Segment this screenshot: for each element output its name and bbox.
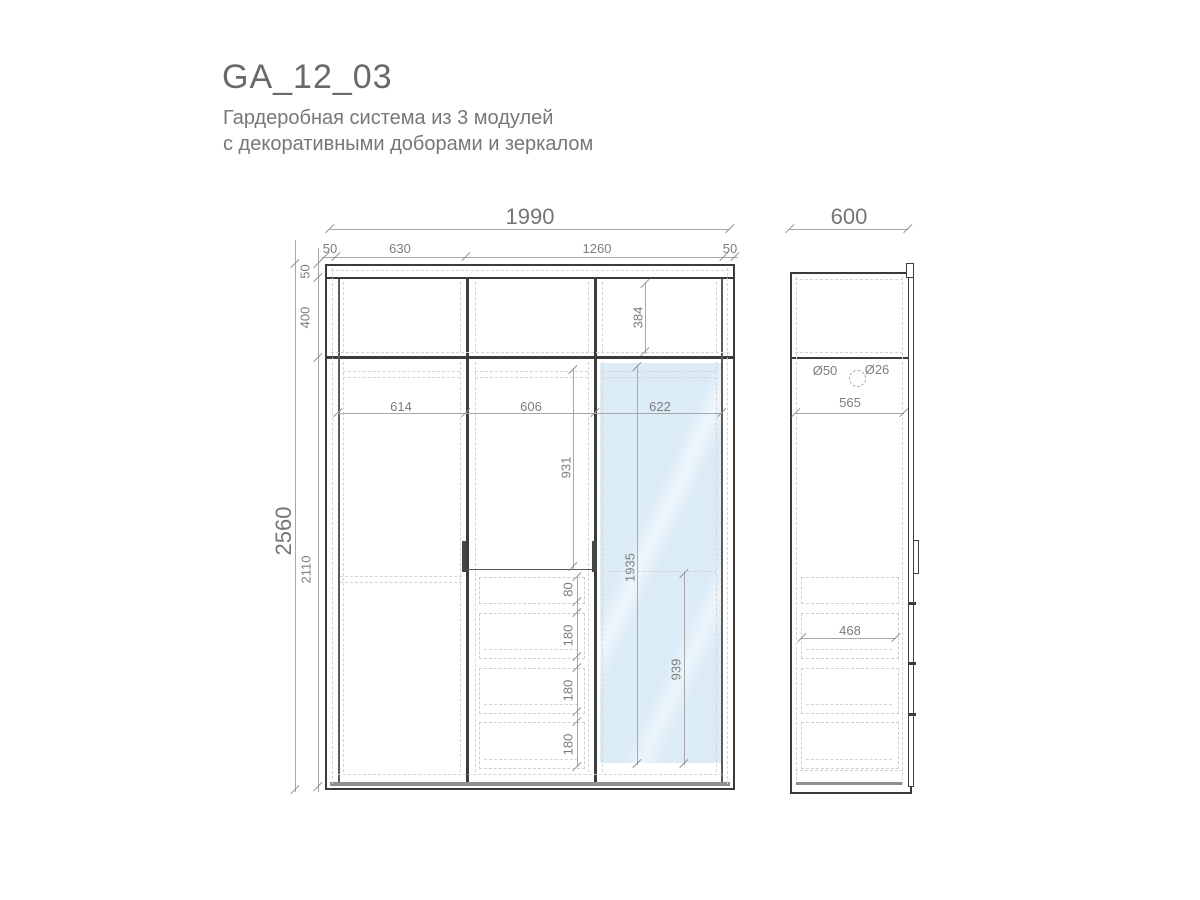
dim-segment-630: 630 bbox=[375, 241, 425, 256]
dim-rod-d50: Ø50 bbox=[810, 363, 840, 378]
dim-inner-depth-565: 565 bbox=[825, 395, 875, 410]
dim-module3-width: 622 bbox=[635, 399, 685, 414]
dim-segment-50-left: 50 bbox=[318, 241, 342, 256]
dim-overall-height: 2560 bbox=[271, 481, 297, 581]
side-door-profile bbox=[908, 264, 914, 787]
dim-height-50: 50 bbox=[298, 260, 313, 284]
subtitle-line-2: с декоративными доборами и зеркалом bbox=[223, 131, 593, 157]
dim-mirror-lower-939: 939 bbox=[669, 652, 684, 688]
door-handle-left bbox=[462, 541, 467, 572]
front-plinth bbox=[330, 782, 730, 786]
dim-drawer-180a: 180 bbox=[561, 618, 576, 654]
side-view-outline bbox=[790, 272, 912, 794]
dim-middle-upper-931: 931 bbox=[559, 450, 574, 486]
side-drawer-handle-3 bbox=[908, 713, 916, 716]
dim-module2-width: 606 bbox=[506, 399, 556, 414]
side-door-handle bbox=[913, 540, 919, 574]
mirror-panel bbox=[600, 363, 721, 763]
side-drawer-handle-1 bbox=[908, 602, 916, 605]
front-crown-line bbox=[325, 277, 735, 279]
side-drawer-handle-2 bbox=[908, 662, 916, 665]
dim-drawer-depth-468: 468 bbox=[825, 623, 875, 638]
dim-drawer-180c: 180 bbox=[561, 727, 576, 763]
front-mezzanine-line bbox=[325, 356, 735, 359]
dim-height-2110: 2110 bbox=[299, 548, 314, 592]
dim-height-400: 400 bbox=[298, 300, 313, 336]
technical-drawing-canvas: GA_12_03 Гардеробная система из 3 модуле… bbox=[0, 0, 1200, 900]
side-drawer-4 bbox=[801, 722, 899, 769]
door-handle-right bbox=[592, 541, 597, 572]
side-door-top-cap bbox=[906, 263, 914, 278]
dim-mezzanine-384: 384 bbox=[631, 300, 646, 336]
dim-segment-50-right: 50 bbox=[718, 241, 742, 256]
front-drawer-top-line bbox=[467, 569, 595, 570]
side-mezzanine-line bbox=[790, 357, 908, 359]
page-title: GA_12_03 bbox=[222, 58, 393, 97]
front-divider-1 bbox=[466, 279, 469, 784]
dim-module1-width: 614 bbox=[376, 399, 426, 414]
front-left-filler-edge bbox=[338, 279, 340, 784]
dim-overall-width: 1990 bbox=[480, 204, 580, 230]
front-divider-2 bbox=[594, 279, 597, 784]
dim-drawer-180b: 180 bbox=[561, 673, 576, 709]
side-drawer-3 bbox=[801, 668, 899, 714]
side-drawer-1 bbox=[801, 577, 899, 604]
front-right-filler-edge bbox=[721, 279, 723, 784]
dim-segment-1260: 1260 bbox=[572, 241, 622, 256]
subtitle-line-1: Гардеробная система из 3 модулей bbox=[223, 105, 553, 131]
dim-drawer-80: 80 bbox=[561, 575, 576, 605]
dim-rod-d26: Ø26 bbox=[862, 362, 892, 377]
dim-depth-600: 600 bbox=[799, 204, 899, 230]
dim-mirror-1935: 1935 bbox=[623, 546, 638, 590]
side-plinth bbox=[796, 782, 902, 785]
